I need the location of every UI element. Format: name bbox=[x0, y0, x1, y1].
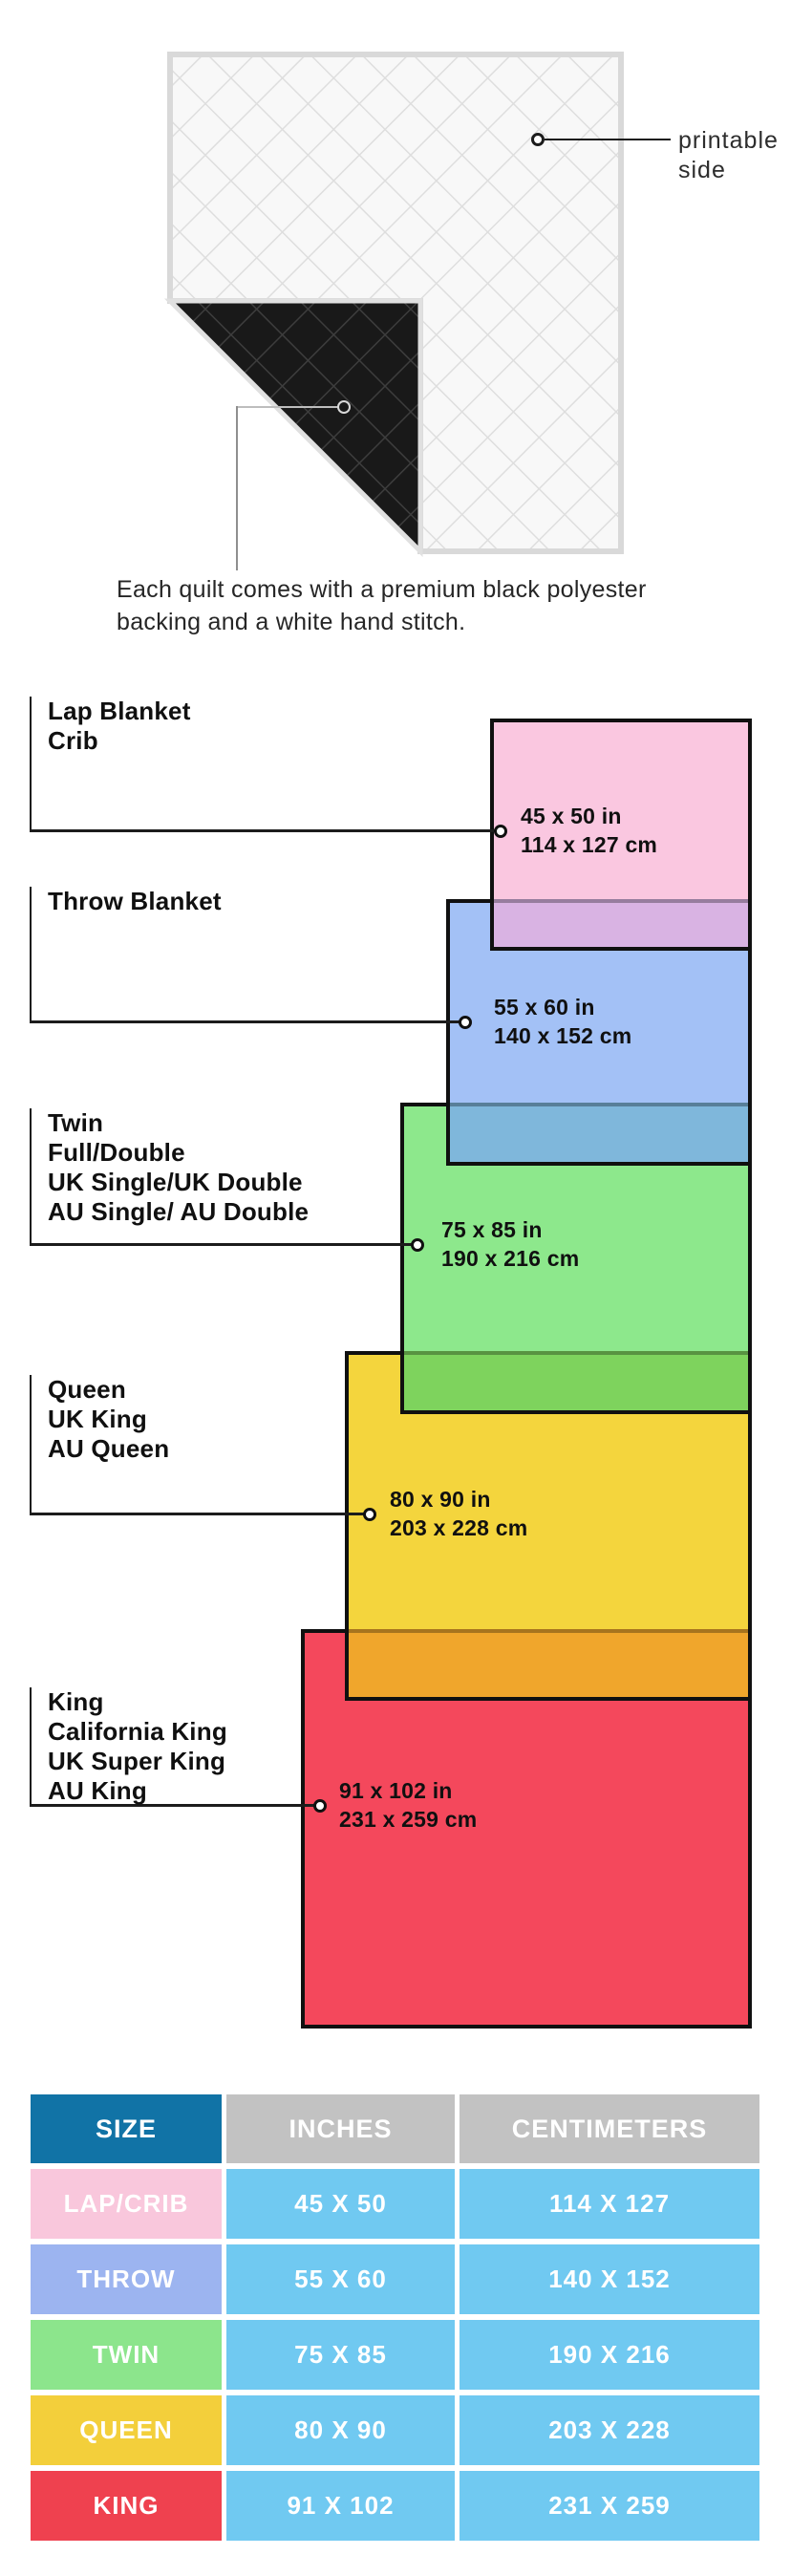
size-dimensions-king: 91 x 102 in 231 x 259 cm bbox=[339, 1776, 477, 1834]
size-tick-king bbox=[30, 1687, 32, 1805]
table-cell-inches: 75 X 85 bbox=[226, 2320, 455, 2390]
backing-leader-line-horizontal bbox=[237, 406, 338, 408]
table-header-centimeters: CENTIMETERS bbox=[460, 2094, 759, 2163]
table-cell-cm: 190 X 216 bbox=[460, 2320, 759, 2390]
table-cell-cm: 231 X 259 bbox=[460, 2471, 759, 2541]
table-cell-cm: 203 X 228 bbox=[460, 2395, 759, 2465]
table-cell-size: THROW bbox=[31, 2244, 222, 2314]
table-cell-cm: 114 X 127 bbox=[460, 2169, 759, 2239]
table-cell-size: QUEEN bbox=[31, 2395, 222, 2465]
printable-side-label: printable side bbox=[678, 126, 779, 185]
backing-marker bbox=[337, 400, 351, 414]
table-cell-size: LAP/CRIB bbox=[31, 2169, 222, 2239]
size-marker-king bbox=[313, 1799, 327, 1813]
size-marker-lap-crib bbox=[494, 825, 507, 838]
backing-leader-line-vertical bbox=[236, 406, 238, 570]
table-cell-inches: 55 X 60 bbox=[226, 2244, 455, 2314]
size-label-twin: Twin Full/Double UK Single/UK Double AU … bbox=[48, 1108, 309, 1227]
printable-side-leader-line bbox=[545, 139, 671, 140]
printable-side-marker bbox=[531, 133, 545, 146]
table-cell-inches: 45 X 50 bbox=[226, 2169, 455, 2239]
size-table: SIZE INCHES CENTIMETERS LAP/CRIB 45 X 50… bbox=[31, 2094, 759, 2541]
size-tick-twin bbox=[30, 1108, 32, 1244]
size-dimensions-twin: 75 x 85 in 190 x 216 cm bbox=[441, 1215, 579, 1273]
table-cell-size: TWIN bbox=[31, 2320, 222, 2390]
size-label-queen: Queen UK King AU Queen bbox=[48, 1375, 169, 1464]
size-label-throw: Throw Blanket bbox=[48, 887, 222, 916]
size-leader-queen bbox=[30, 1513, 370, 1515]
table-header-size: SIZE bbox=[31, 2094, 222, 2163]
size-tick-queen bbox=[30, 1375, 32, 1513]
size-leader-twin bbox=[30, 1243, 417, 1246]
overlap-lap-throw bbox=[494, 899, 748, 947]
size-marker-queen bbox=[363, 1508, 376, 1521]
size-dimensions-lap-crib: 45 x 50 in 114 x 127 cm bbox=[521, 802, 657, 859]
quilt-caption: Each quilt comes with a premium black po… bbox=[117, 573, 728, 638]
table-cell-inches: 80 X 90 bbox=[226, 2395, 455, 2465]
overlap-throw-twin bbox=[450, 1103, 748, 1162]
size-label-lap-crib: Lap Blanket Crib bbox=[48, 697, 191, 756]
table-cell-inches: 91 X 102 bbox=[226, 2471, 455, 2541]
size-dimensions-throw: 55 x 60 in 140 x 152 cm bbox=[494, 993, 631, 1050]
size-tick-lap-crib bbox=[30, 697, 32, 830]
size-marker-twin bbox=[411, 1238, 424, 1252]
quilt-size-guide: printable side Each quilt comes with a p… bbox=[0, 0, 791, 2576]
size-label-king: King California King UK Super King AU Ki… bbox=[48, 1687, 227, 1806]
table-cell-size: KING bbox=[31, 2471, 222, 2541]
size-leader-throw bbox=[30, 1020, 465, 1023]
quilt-black-backing-fold bbox=[170, 301, 420, 551]
table-header-inches: INCHES bbox=[226, 2094, 455, 2163]
table-cell-cm: 140 X 152 bbox=[460, 2244, 759, 2314]
size-dimensions-queen: 80 x 90 in 203 x 228 cm bbox=[390, 1485, 527, 1542]
size-leader-lap-crib bbox=[30, 829, 501, 832]
overlap-queen-king bbox=[349, 1629, 748, 1697]
overlap-twin-queen bbox=[404, 1351, 748, 1410]
quilt-illustration bbox=[0, 0, 791, 669]
size-tick-throw bbox=[30, 887, 32, 1021]
size-marker-throw bbox=[459, 1016, 472, 1029]
